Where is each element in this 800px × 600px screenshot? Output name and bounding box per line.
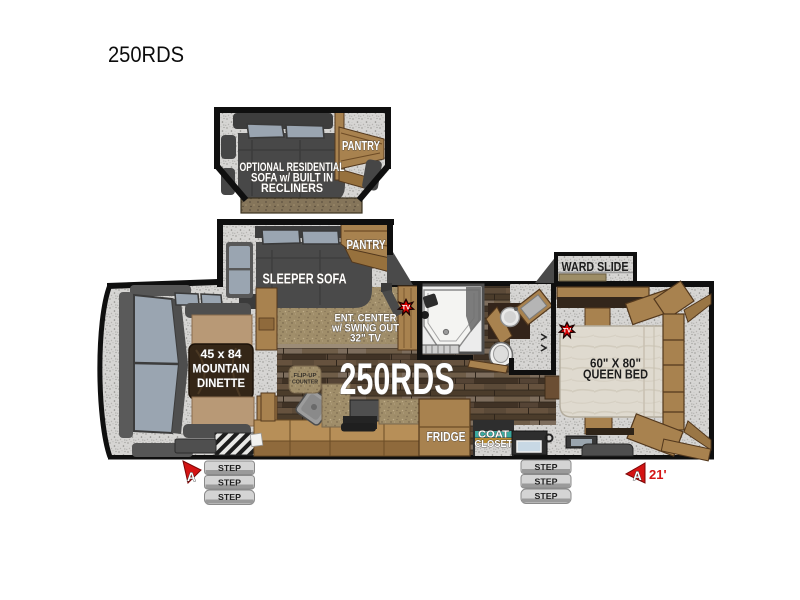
svg-text:WARD SLIDE: WARD SLIDE <box>562 260 629 274</box>
svg-text:PANTRY: PANTRY <box>342 139 381 153</box>
svg-text:STEP: STEP <box>218 492 241 502</box>
svg-text:250RDS: 250RDS <box>340 355 455 404</box>
svg-text:21': 21' <box>649 467 667 482</box>
svg-text:STEP: STEP <box>535 491 558 501</box>
svg-text:RECLINERS: RECLINERS <box>261 183 323 195</box>
svg-text:FLIP-UP: FLIP-UP <box>294 373 317 379</box>
svg-text:QUEEN BED: QUEEN BED <box>583 368 648 382</box>
svg-text:FRIDGE: FRIDGE <box>427 430 466 444</box>
svg-text:32" TV: 32" TV <box>350 333 382 345</box>
svg-text:STEP: STEP <box>535 477 558 487</box>
svg-text:COUNTER: COUNTER <box>292 380 318 386</box>
svg-text:CLOSET: CLOSET <box>475 438 514 450</box>
svg-text:A: A <box>187 470 196 484</box>
svg-text:45 x 84: 45 x 84 <box>201 347 242 361</box>
svg-text:PANTRY: PANTRY <box>347 238 387 252</box>
svg-text:STEP: STEP <box>218 478 241 488</box>
svg-text:STEP: STEP <box>218 463 241 473</box>
svg-text:STEP: STEP <box>535 462 558 472</box>
svg-text:250RDS: 250RDS <box>108 42 184 67</box>
svg-text:SLEEPER SOFA: SLEEPER SOFA <box>263 271 347 288</box>
svg-text:DINETTE: DINETTE <box>197 376 245 390</box>
svg-text:A: A <box>633 469 642 483</box>
svg-text:MOUNTAIN: MOUNTAIN <box>193 362 250 376</box>
